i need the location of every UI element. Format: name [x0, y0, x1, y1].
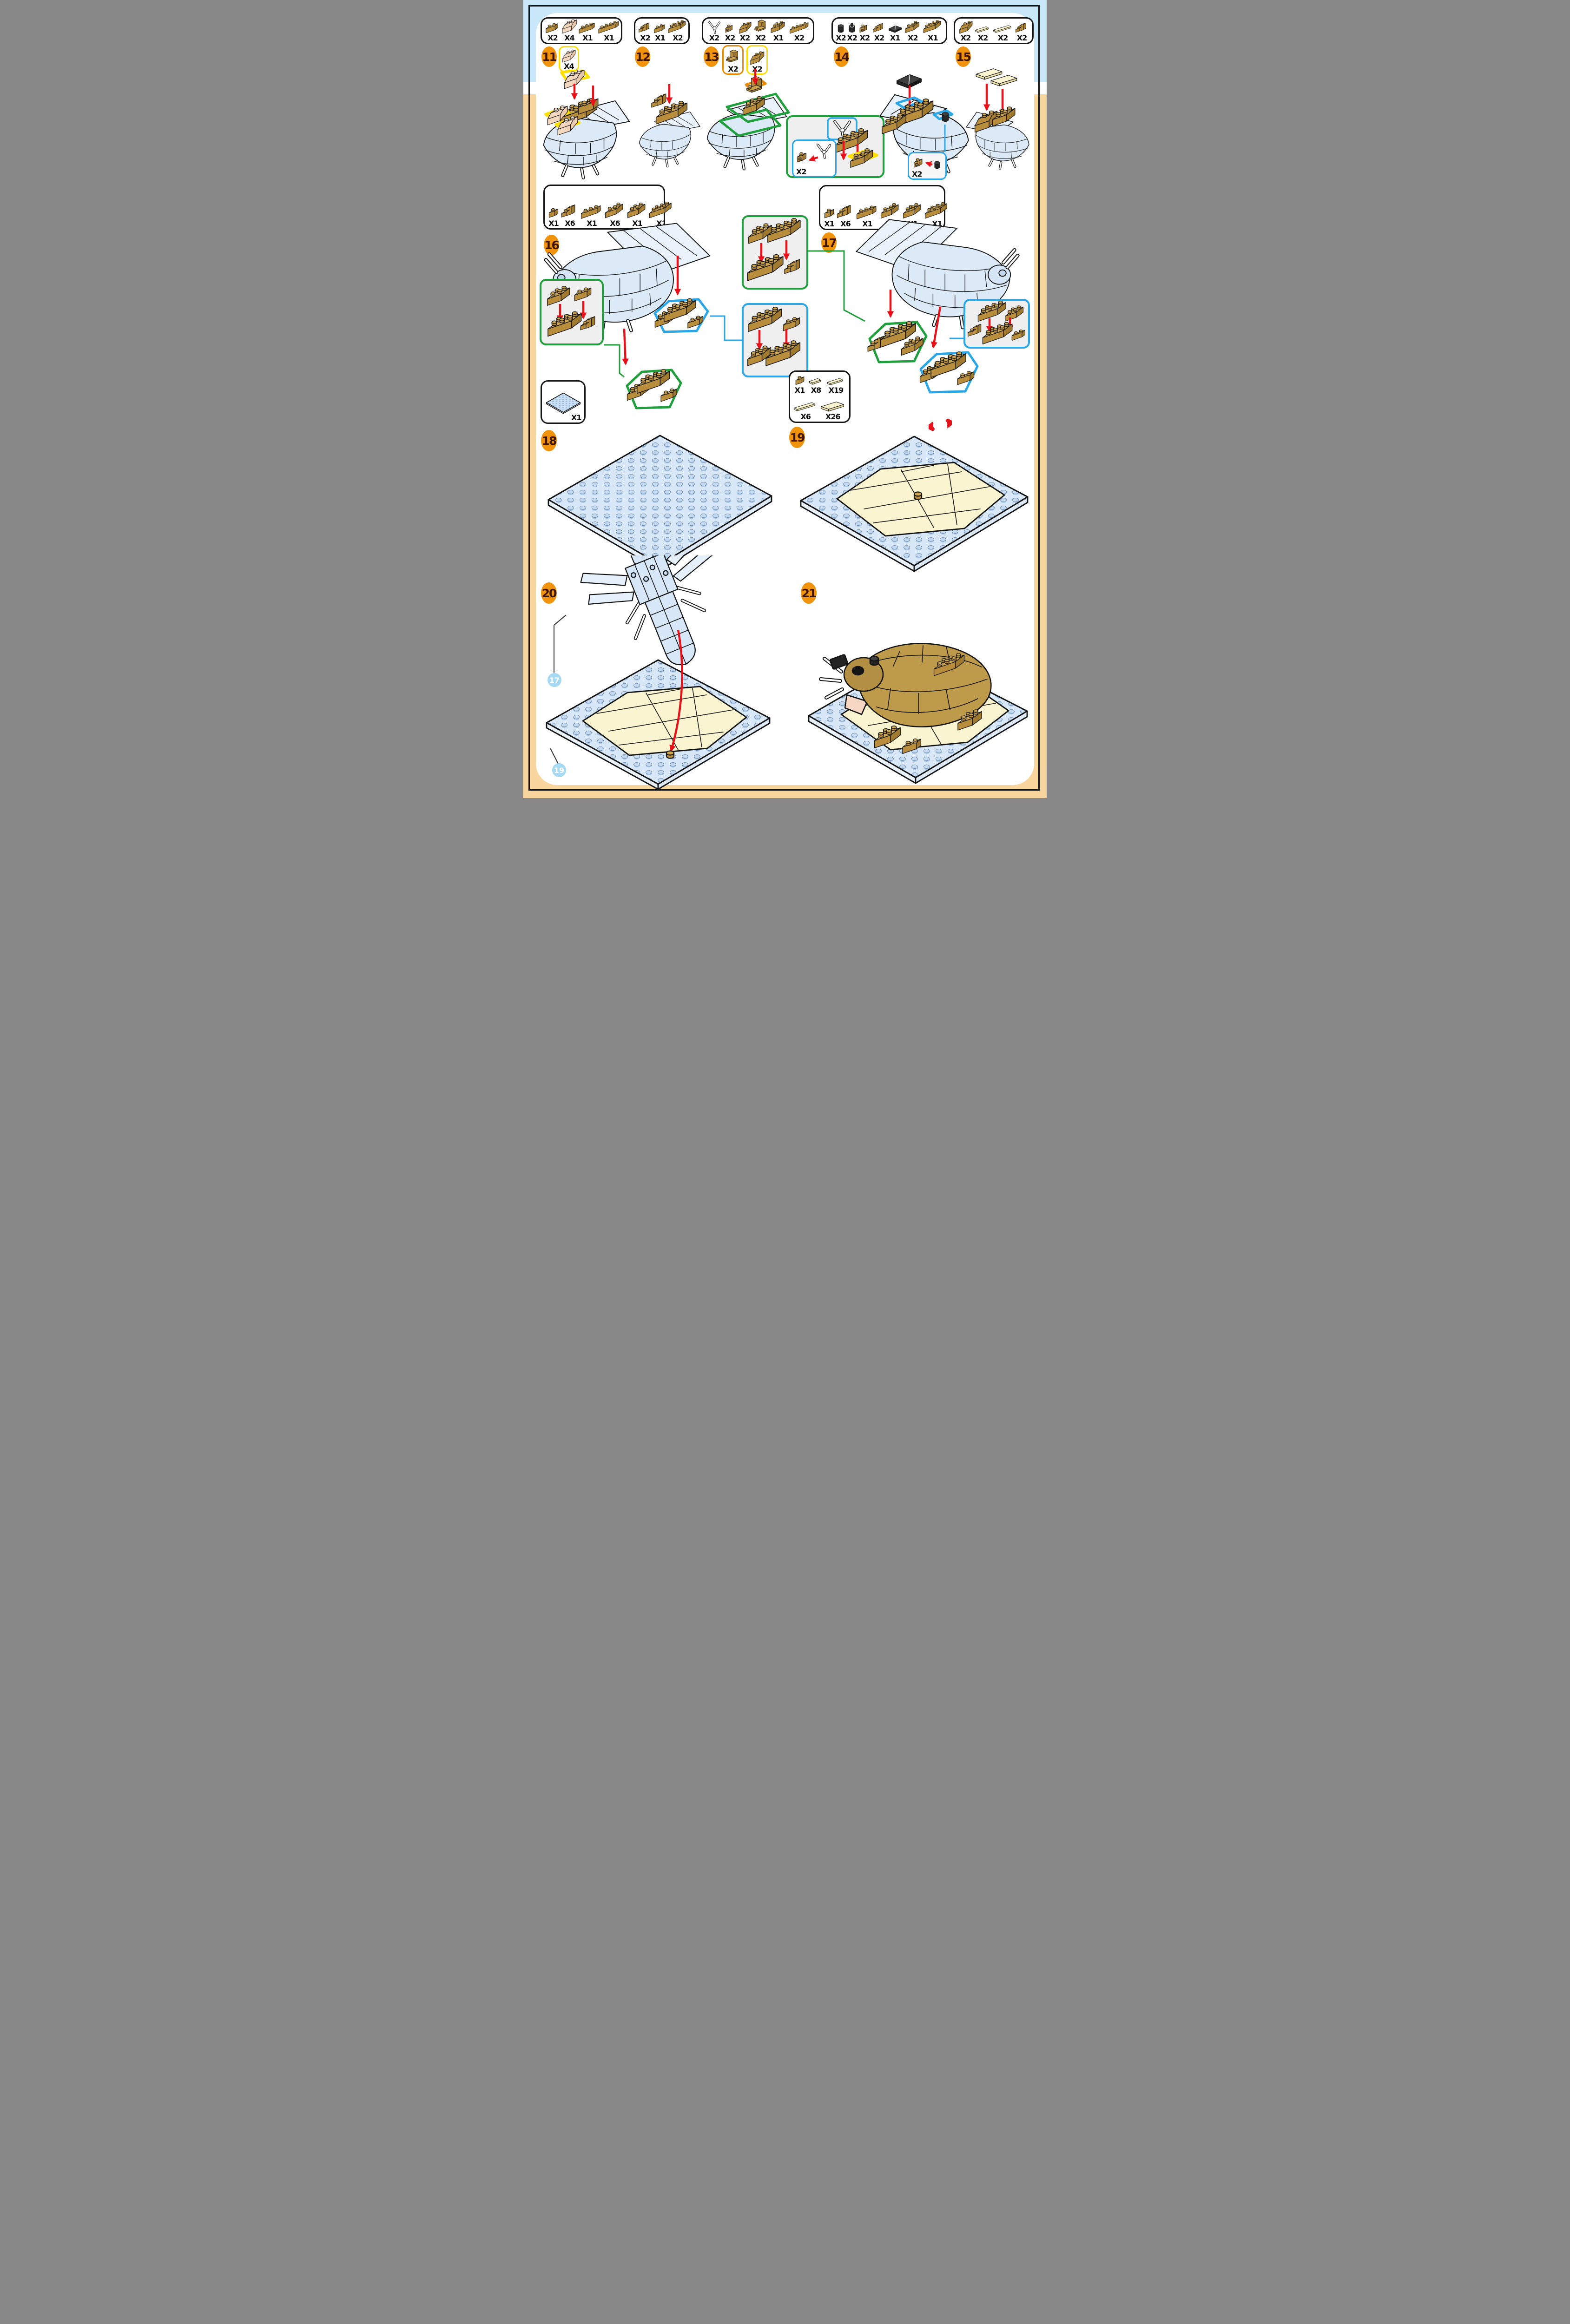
part-plate-wide: X26: [820, 399, 846, 421]
step-17-blue-callout: [742, 303, 808, 377]
step-16-subassembly-green: [623, 367, 684, 413]
ref-circle-step-19: 19: [552, 763, 566, 777]
part-qty: X1: [795, 387, 805, 394]
part-corner-brick: X2: [1015, 20, 1029, 42]
part-qty: X1: [824, 220, 834, 228]
step-badge-14: 14: [834, 46, 849, 67]
step-number: 11: [542, 50, 556, 64]
part-side-stud-brick: X2: [724, 21, 737, 42]
part-qty: X2: [756, 34, 765, 42]
part-qty: X2: [740, 34, 750, 42]
corner-brick-icon: [639, 23, 649, 32]
step-17-subassembly-blue: [916, 349, 981, 397]
step-13-inset-art: [794, 142, 835, 168]
brick-1x4-icon: [599, 21, 619, 33]
ref-label: 19: [554, 766, 564, 775]
step-16-left-callout: [540, 279, 604, 345]
notch-brick-icon: [905, 21, 919, 33]
part-black-tile: X1: [887, 23, 903, 42]
baseplate-icon: [546, 393, 580, 414]
part-notch-brick-2x2: X2: [904, 20, 922, 42]
step-19-diagram: [794, 425, 1034, 573]
slope-brick-icon: [562, 20, 577, 33]
step-number: 13: [704, 50, 719, 64]
brick-1x1-icon: [549, 208, 558, 217]
leg-piece-icon: [709, 22, 719, 33]
part-qty: X2: [908, 34, 917, 42]
part-black-cylinder: X2: [836, 22, 846, 42]
part-wedge-tile-long: X2: [993, 25, 1013, 42]
step-17-green-callout: [742, 215, 808, 290]
step-13-inset-x2: X2: [792, 139, 837, 178]
step-number: 14: [834, 50, 849, 64]
parts-box-step-11: X2 X4 X1 X1: [541, 17, 622, 44]
part-qty: X2: [860, 34, 870, 42]
plate-icon: [821, 402, 844, 411]
part-qty: X2: [961, 34, 970, 42]
step-badge-13: 13: [704, 46, 719, 67]
part-qty: X2: [1017, 34, 1027, 42]
black-cylinder: [942, 112, 949, 121]
step-15-diagram: [963, 65, 1034, 179]
brick-1x1-icon: [825, 209, 833, 218]
part-qty: X2: [709, 34, 719, 42]
part-brick-2x2: X1: [770, 20, 787, 42]
side-stud-brick-icon: [726, 25, 732, 33]
brick-2x2-icon: [628, 203, 645, 218]
corner-wall-icon: [726, 50, 738, 62]
part-qty: X2: [998, 34, 1008, 42]
corner-brick-icon: [561, 205, 575, 217]
inset-qty: X2: [910, 171, 922, 178]
part-qty: X26: [825, 413, 840, 421]
part-tile-medium: X19: [826, 377, 846, 394]
step-13-diagram: [701, 65, 792, 177]
step-number: 12: [635, 50, 650, 64]
step-17-blue-callout-art: [744, 305, 806, 376]
part-qty: X1: [890, 34, 900, 42]
corner-brick-icon: [1016, 23, 1026, 32]
part-qty: X1: [582, 34, 592, 42]
parts-box-step-19: X1 X8 X19 X6 X26: [789, 370, 851, 423]
ref-circle-step-17: 17: [548, 673, 561, 687]
part-qty: X1: [604, 34, 613, 42]
part-qty: X2: [847, 34, 857, 42]
ref-label: 17: [549, 676, 560, 685]
part-wedge-tile: X2: [975, 25, 991, 42]
part-corner-brick: X2: [872, 21, 886, 42]
part-side-stud-brick: X2: [858, 21, 871, 42]
wedge-tile-icon: [975, 26, 988, 32]
part-qty: X2: [978, 34, 988, 42]
part-brick-1x1: X1: [823, 205, 836, 228]
brick-1x3-icon: [581, 205, 600, 218]
brick-2x3-icon: [924, 20, 941, 33]
part-qty: X19: [829, 387, 844, 394]
step-14-inset-art: [910, 154, 945, 171]
tile-icon: [809, 378, 820, 384]
part-qty: X1: [655, 34, 665, 42]
step-18-diagram: [543, 425, 777, 573]
slope-brick-icon: [751, 52, 764, 65]
brick-1x2-icon: [654, 25, 665, 33]
part-brick-1x4: X1: [597, 19, 620, 42]
part-leg-element: X2: [706, 20, 722, 42]
step-17-right-callout-art: [965, 301, 1028, 347]
part-qty: X2: [794, 34, 804, 42]
tile-icon: [827, 378, 842, 385]
part-qty: X1: [773, 34, 783, 42]
part-tile-small: X8: [808, 376, 824, 394]
black-cylinder-stud-icon: [849, 23, 855, 32]
callout-step-11-x4: X4: [559, 46, 579, 72]
part-black-cylinder-stud: X2: [847, 21, 857, 42]
part-qty: X6: [801, 413, 811, 421]
corner-brick-icon: [873, 23, 883, 32]
step-badge-15: 15: [956, 46, 971, 67]
black-cylinder-icon: [935, 161, 940, 169]
part-qty: X1: [571, 414, 581, 422]
part-qty: X2: [673, 34, 682, 42]
part-qty: X2: [548, 34, 557, 42]
corner-wall-icon: [754, 20, 765, 31]
side-stud-brick-icon: [860, 25, 867, 33]
step-badge-12: 12: [635, 46, 650, 67]
part-qty: X2: [640, 34, 650, 42]
brick-2x3-icon: [650, 202, 672, 218]
step-number: 17: [822, 236, 836, 250]
brick-1x1-icon: [796, 376, 804, 385]
part-corner-brick: X2: [638, 20, 653, 42]
step-20-diagram: [536, 555, 786, 790]
step-17-right-callout: [963, 299, 1030, 349]
instruction-page: X2 X4 X1 X1 11 X4 X2 X1 X2 12 X2 X2 X2: [523, 0, 1047, 798]
step-badge-11: 11: [541, 46, 557, 67]
wedge-tile-icon: [993, 26, 1011, 33]
black-cylinder-icon: [838, 25, 844, 33]
part-brick-1x2: X2: [544, 19, 561, 42]
callout-qty: X4: [564, 63, 574, 70]
part-qty: X2: [874, 34, 884, 42]
step-badge-17: 17: [821, 232, 837, 253]
side-stud-brick-icon: [798, 152, 806, 162]
step-17-green-callout-art: [744, 217, 806, 288]
part-corner-wall: X2: [753, 19, 768, 42]
step-16-left-callout-art: [541, 281, 602, 343]
step-number: 15: [956, 50, 970, 64]
black-tile-icon: [889, 26, 901, 33]
parts-box-step-18: X1: [541, 380, 586, 424]
brick-1x3-icon: [579, 23, 594, 33]
tile-icon: [794, 403, 815, 411]
slope-brick-icon: [959, 21, 972, 33]
inset-qty: X2: [794, 168, 806, 176]
step-12-diagram: [635, 77, 702, 179]
step-16-subassembly-blue: [652, 297, 710, 335]
parts-box-step-13: X2 X2 X2 X2 X1 X2: [702, 17, 814, 44]
part-qty: X8: [811, 387, 821, 394]
part-slope-cream: X4: [561, 18, 578, 42]
part-slope-brick: X2: [738, 20, 752, 42]
parts-box-step-14: X2 X2 X2 X2 X1 X2 X1: [831, 17, 947, 44]
part-qty: X4: [564, 34, 574, 42]
part-qty: X2: [836, 34, 845, 42]
parts-box-step-15: X2 X2 X2 X2: [954, 17, 1034, 44]
slope-brick-icon: [739, 22, 751, 33]
leg-piece-icon: [818, 145, 830, 158]
part-baseplate: X1: [545, 390, 581, 422]
part-slope-brick: X2: [958, 20, 973, 42]
step-14-inset-x2: X2: [908, 152, 947, 180]
part-brick-1x3: X1: [578, 20, 597, 42]
part-brick-1x2: X1: [653, 20, 667, 42]
notch-brick-icon: [606, 203, 623, 218]
part-brick-1x1-tan: X1: [794, 373, 806, 394]
part-qty: X1: [928, 34, 937, 42]
parts-box-step-12: X2 X1 X2: [634, 17, 690, 44]
part-qty: X2: [725, 34, 735, 42]
part-brick-1x4: X2: [789, 20, 810, 42]
step-11-diagram: [537, 70, 635, 181]
brick-1x2-icon: [546, 23, 558, 33]
side-stud-brick-icon: [914, 158, 922, 167]
part-tile-long: X6: [793, 402, 818, 421]
brick-1x4-icon: [790, 22, 808, 33]
brick-2x3-icon: [668, 20, 686, 33]
slope-brick-icon: [563, 50, 575, 62]
brick-2x2-icon: [771, 21, 785, 33]
part-brick-2x3: X1: [923, 20, 943, 42]
step-21-diagram: [802, 597, 1034, 789]
part-brick-2x3: X2: [667, 20, 688, 42]
